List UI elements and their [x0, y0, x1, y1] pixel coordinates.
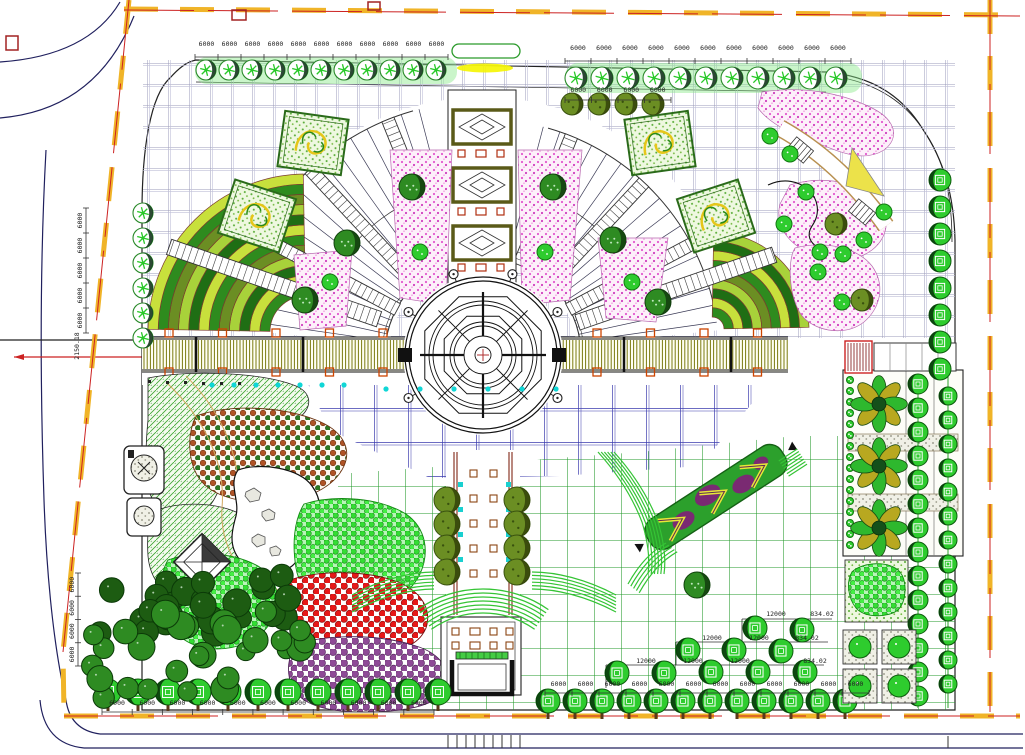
dim-label: 6000	[68, 577, 76, 593]
dim-label: 6000	[222, 40, 238, 48]
dim-label: 6000	[76, 288, 84, 304]
dim-label: 6000	[381, 699, 397, 707]
dim-label: 6000	[139, 699, 155, 707]
dim-label: 6000	[622, 44, 638, 52]
dim-label: 6000	[804, 44, 820, 52]
dim-label: 6000	[686, 680, 702, 688]
dim-label: 6000	[199, 40, 215, 48]
dim-label: 6000	[605, 680, 621, 688]
gate-pool	[452, 660, 512, 694]
dim-label: 6000	[245, 40, 261, 48]
dim-label: 6000	[830, 44, 846, 52]
dim-label: 6000	[411, 699, 427, 707]
annotation-label: 12000	[683, 657, 703, 665]
entry-canopy	[452, 44, 520, 58]
dim-label: 6000	[406, 40, 422, 48]
annotation-label: 12000	[636, 657, 656, 665]
dim-label: 6000	[429, 40, 445, 48]
dim-label: 6000	[76, 313, 84, 329]
waterside-kiosk-2	[127, 498, 161, 536]
flower-trees-grove	[851, 376, 908, 557]
dim-label: 6000	[109, 699, 125, 707]
dim-label: 6000	[76, 213, 84, 229]
dim-label: 6000	[713, 680, 729, 688]
dim-label: 6000	[337, 40, 353, 48]
gate-hedge	[456, 652, 508, 659]
grove-tree-mass	[849, 564, 906, 616]
annotation-label: 834.02	[810, 610, 834, 618]
dim-label: 6000	[821, 680, 837, 688]
dim-label: 6000	[321, 699, 337, 707]
dim-row-0: 6000600060006000600060006000600060006000…	[195, 40, 448, 60]
waterside-kiosk-1	[124, 446, 164, 494]
ornamental-bed-3	[624, 111, 695, 175]
dim-label: 6000	[794, 680, 810, 688]
road-left-edge	[41, 150, 66, 700]
dim-label: 6000	[260, 699, 276, 707]
dim-label: 6000	[76, 263, 84, 279]
dim-label: 6000	[632, 680, 648, 688]
road-arrowhead	[14, 354, 24, 360]
dim-label: 6000	[268, 40, 284, 48]
dim-label: 6000	[290, 699, 306, 707]
annotation-label: 2150.18	[73, 332, 81, 359]
dim-label: 6000	[230, 699, 246, 707]
dim-label: 6000	[778, 44, 794, 52]
ornamental-bed-2	[277, 111, 348, 175]
dim-label: 6000	[740, 680, 756, 688]
road-corner-outer	[0, 2, 120, 62]
annotation-label: 834.02	[795, 634, 819, 642]
dim-label: 6000	[170, 699, 186, 707]
dim-label: 6000	[767, 680, 783, 688]
yellow-highlight	[457, 64, 513, 73]
dim-label: 6000	[578, 680, 594, 688]
site-plan-canvas: 6000600060006000600060006000600060006000…	[0, 0, 1025, 755]
annotation-label: 12000	[749, 634, 769, 642]
boundary-red-left	[63, 0, 129, 652]
dim-label: 6000	[848, 680, 864, 688]
annotation-label: 12000	[766, 610, 786, 618]
dim-label: 6000	[314, 40, 330, 48]
flower-area-pink-1	[390, 150, 452, 305]
dim-label: 6000	[68, 600, 76, 616]
dim-label: 6000	[200, 699, 216, 707]
dim-label: 6000	[383, 40, 399, 48]
dim-row-4: 6000600060006000	[68, 573, 81, 666]
dim-label: 6000	[752, 44, 768, 52]
reflecting-pool-2	[453, 168, 511, 202]
dim-label: 6000	[360, 40, 376, 48]
dim-label: 6000	[68, 646, 76, 662]
dim-label: 6000	[570, 86, 586, 94]
dim-label: 6000	[726, 44, 742, 52]
dim-label: 6000	[659, 680, 675, 688]
crosswalk-ticks	[448, 735, 948, 748]
landscape-plan-drawing: 6000600060006000600060006000600060006000…	[0, 0, 1025, 755]
reflecting-pool-3	[453, 226, 511, 260]
pergola-end-red-block	[845, 341, 872, 373]
dim-label: 6000	[648, 44, 664, 52]
tree-row-top-left	[196, 60, 446, 80]
dim-row-1: 6000600060006000600060006000600060006000…	[565, 44, 851, 64]
annotation-label: 834.02	[803, 657, 827, 665]
annotation-label: 12000	[730, 657, 750, 665]
boundary-yellow-top	[124, 9, 1020, 15]
dim-label: 6000	[351, 699, 367, 707]
annotation-label: 12000	[702, 634, 722, 642]
reflecting-pool-1	[453, 110, 511, 144]
dim-label: 6000	[674, 44, 690, 52]
dim-label: 6000	[700, 44, 716, 52]
dim-label: 6000	[596, 44, 612, 52]
dim-row-3: 60006000600060006000	[76, 208, 89, 333]
dim-label: 6000	[291, 40, 307, 48]
boundary-marker-1	[6, 36, 18, 50]
dim-label: 6000	[623, 86, 639, 94]
dim-label: 6000	[68, 623, 76, 639]
dim-label: 6000	[570, 44, 586, 52]
south-gate	[441, 617, 521, 695]
dim-label: 6000	[76, 238, 84, 254]
dim-label: 6000	[650, 86, 666, 94]
dim-label: 6000	[551, 680, 567, 688]
dim-label: 6000	[597, 86, 613, 94]
road-corner-inner	[0, 16, 134, 118]
